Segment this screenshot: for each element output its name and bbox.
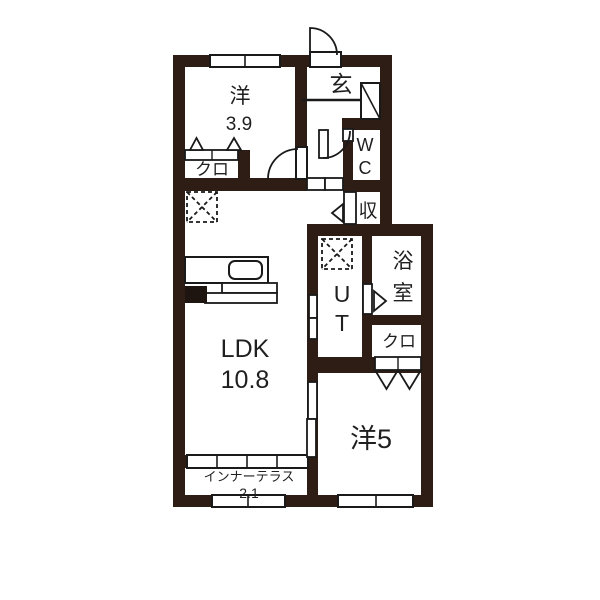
washer-placement-box bbox=[322, 239, 352, 269]
westroom39-door-leaf bbox=[296, 147, 307, 179]
label-inner-terrace-area: 2.1 bbox=[239, 485, 259, 501]
label-wc-line2: C bbox=[359, 158, 372, 178]
wc-door-leaf bbox=[319, 130, 328, 158]
wall-left bbox=[173, 55, 185, 507]
label-wc-line1: W bbox=[357, 135, 374, 155]
label-closet-right: クロ bbox=[382, 332, 416, 351]
hanger-icon bbox=[190, 138, 203, 150]
label-westroom39: 洋 bbox=[230, 85, 251, 108]
wall-right-upper bbox=[380, 55, 392, 236]
floor-plan-drawing: 洋 3.9 玄 W C 収 クロ 浴 室 U T クロ LDK 10.8 洋5 … bbox=[0, 0, 600, 600]
wall-closet-side bbox=[238, 150, 250, 178]
label-ldk-area: 10.8 bbox=[221, 366, 270, 394]
wall-bath-top bbox=[307, 224, 433, 236]
wall-terrace-stub bbox=[173, 455, 187, 468]
entrance-door-swing-arc bbox=[310, 28, 337, 55]
label-bath-line2: 室 bbox=[393, 282, 414, 305]
label-ut-line2: T bbox=[335, 310, 349, 336]
hanger-icon bbox=[227, 138, 241, 150]
bath-direction-triangle-icon bbox=[374, 291, 386, 311]
floor-plan: 洋 3.9 玄 W C 収 クロ 浴 室 U T クロ LDK 10.8 洋5 … bbox=[0, 0, 600, 600]
kitchen-sink bbox=[229, 261, 262, 279]
label-entrance: 玄 bbox=[330, 71, 353, 97]
hall-ldk-sliding-door bbox=[307, 178, 343, 190]
wall-wc-storage bbox=[343, 180, 392, 192]
wall-westroom-ldk bbox=[185, 178, 307, 191]
kitchen-counter-edge-1 bbox=[222, 283, 277, 293]
westroom5-sliding-door bbox=[307, 382, 317, 457]
label-ldk: LDK bbox=[221, 335, 270, 363]
label-ut-line1: U bbox=[334, 281, 351, 307]
storage-door bbox=[344, 192, 356, 224]
bath-door-opening bbox=[363, 284, 372, 314]
westroom39-door-swing-arc bbox=[268, 149, 298, 179]
label-bath-line1: 浴 bbox=[393, 250, 414, 273]
label-westroom5: 洋5 bbox=[350, 424, 392, 454]
kitchen-counter-edge-2 bbox=[205, 293, 277, 303]
wall-bath-closet bbox=[362, 315, 433, 325]
label-westroom39-area: 3.9 bbox=[226, 114, 252, 135]
kitchen-stove-block bbox=[185, 286, 207, 303]
wall-top bbox=[173, 55, 392, 67]
ut-sliding-door bbox=[309, 295, 317, 339]
label-closet-upper: クロ bbox=[195, 160, 229, 179]
label-inner-terrace: インナーテラス bbox=[204, 469, 295, 484]
label-storage: 収 bbox=[358, 200, 377, 222]
refrigerator-placement-box bbox=[187, 192, 217, 222]
storage-direction-triangle-icon bbox=[332, 204, 343, 222]
